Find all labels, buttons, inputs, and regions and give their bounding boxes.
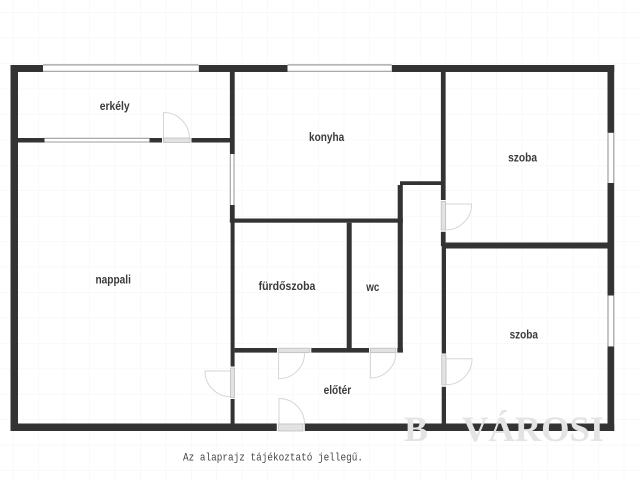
svg-text:nappali: nappali	[96, 272, 131, 286]
svg-text:konyha: konyha	[309, 130, 344, 144]
svg-text:wc: wc	[365, 280, 379, 294]
svg-text:VÁROSI: VÁROSI	[462, 409, 604, 449]
svg-text:fürdőszoba: fürdőszoba	[259, 279, 316, 293]
svg-text:előtér: előtér	[324, 383, 352, 397]
svg-text:erkély: erkély	[100, 99, 130, 113]
svg-text:szoba: szoba	[508, 150, 537, 164]
svg-text:szoba: szoba	[510, 327, 539, 341]
svg-text:Az alaprajz tájékoztató jelleg: Az alaprajz tájékoztató jellegű.	[183, 453, 363, 465]
svg-text:B: B	[404, 409, 428, 449]
